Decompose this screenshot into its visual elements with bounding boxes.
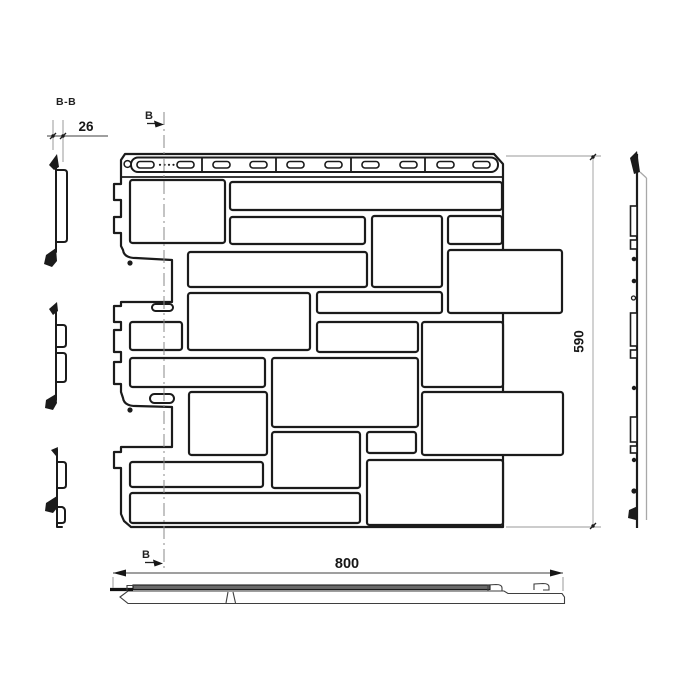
stone-block <box>188 252 367 287</box>
nail-slot <box>213 162 230 169</box>
nail-slot <box>137 162 154 169</box>
section2-foot <box>45 394 57 410</box>
stone-block <box>272 358 418 427</box>
section-arrow-top-icon <box>154 121 164 128</box>
hook-curl-bottom <box>127 407 132 412</box>
stone-block <box>317 292 442 313</box>
section-view-left <box>44 154 67 527</box>
stone-block <box>317 322 418 352</box>
face-oval-slot <box>150 394 174 403</box>
stone-block <box>367 460 503 525</box>
profile-lugs <box>631 257 636 494</box>
strip-end-detail <box>124 161 131 168</box>
dim-thickness-value: 26 <box>78 119 94 134</box>
stone-block <box>448 216 502 244</box>
section-mark-bottom-label: B <box>142 549 150 561</box>
stone-block <box>422 392 563 455</box>
stone-block <box>130 322 182 350</box>
nail-slot <box>177 162 194 169</box>
section1-channel <box>56 170 67 242</box>
nail-slot <box>362 162 379 169</box>
section-mark-top-label: B <box>145 110 153 122</box>
stone-block <box>448 250 562 313</box>
stone-block <box>189 392 267 455</box>
front-view <box>114 154 563 527</box>
bottom-body <box>120 591 565 604</box>
bottom-view <box>110 584 565 604</box>
stone-block <box>372 216 442 287</box>
nail-slot <box>250 162 267 169</box>
technical-drawing-page: B B B-B 26 800 590 <box>0 0 700 700</box>
dim-height: 590 <box>506 154 601 529</box>
face-oval-slot <box>152 304 173 311</box>
nail-dot <box>172 164 174 166</box>
nail-slot <box>287 162 304 169</box>
nail-slot <box>325 162 342 169</box>
profile-top-flag <box>630 151 640 174</box>
bottom-shade-band <box>133 585 490 590</box>
nail-slot <box>473 162 490 169</box>
nail-slot <box>400 162 417 169</box>
stone-block <box>422 322 503 387</box>
section-arrow-bottom-icon <box>153 560 163 567</box>
stone-block <box>272 432 360 488</box>
section1-foot <box>44 248 57 267</box>
dim-width-value: 800 <box>335 556 359 572</box>
stone-block <box>230 182 502 210</box>
bottom-notch <box>226 592 236 603</box>
bottom-right-hook-b <box>534 584 549 591</box>
right-profile-view <box>628 151 647 528</box>
dim-height-value: 590 <box>572 330 587 353</box>
stone-block <box>130 180 225 243</box>
nail-slot <box>437 162 454 169</box>
stone-block <box>130 358 265 387</box>
section-title-label: B-B <box>56 96 76 108</box>
section3-channel-a <box>57 462 66 488</box>
section3-channel-b <box>57 507 65 523</box>
facade-panel-drawing: B B B-B 26 800 590 <box>0 0 700 700</box>
stone-block <box>230 217 365 244</box>
profile-top-slant <box>640 172 647 178</box>
stone-block <box>188 293 310 350</box>
section2-channel-b <box>56 353 66 382</box>
hook-curl-top <box>127 260 132 265</box>
nail-dot <box>159 164 161 166</box>
stone-block <box>130 462 263 487</box>
section1-flag <box>49 154 59 170</box>
section2-channel-a <box>56 325 66 347</box>
nail-dot <box>168 164 170 166</box>
stone-block <box>367 432 416 453</box>
